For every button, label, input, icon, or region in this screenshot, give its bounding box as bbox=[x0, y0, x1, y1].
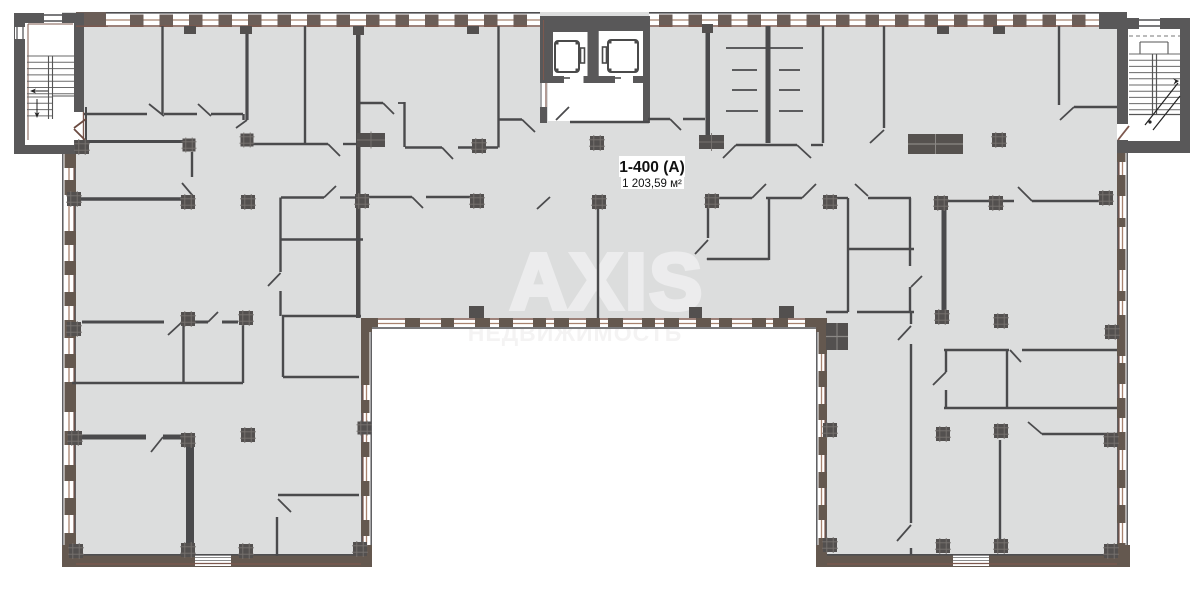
svg-text:AXIS: AXIS bbox=[510, 237, 705, 326]
svg-text:1-400 (А): 1-400 (А) bbox=[619, 159, 684, 176]
svg-text:1 203,59 м²: 1 203,59 м² bbox=[622, 178, 682, 190]
